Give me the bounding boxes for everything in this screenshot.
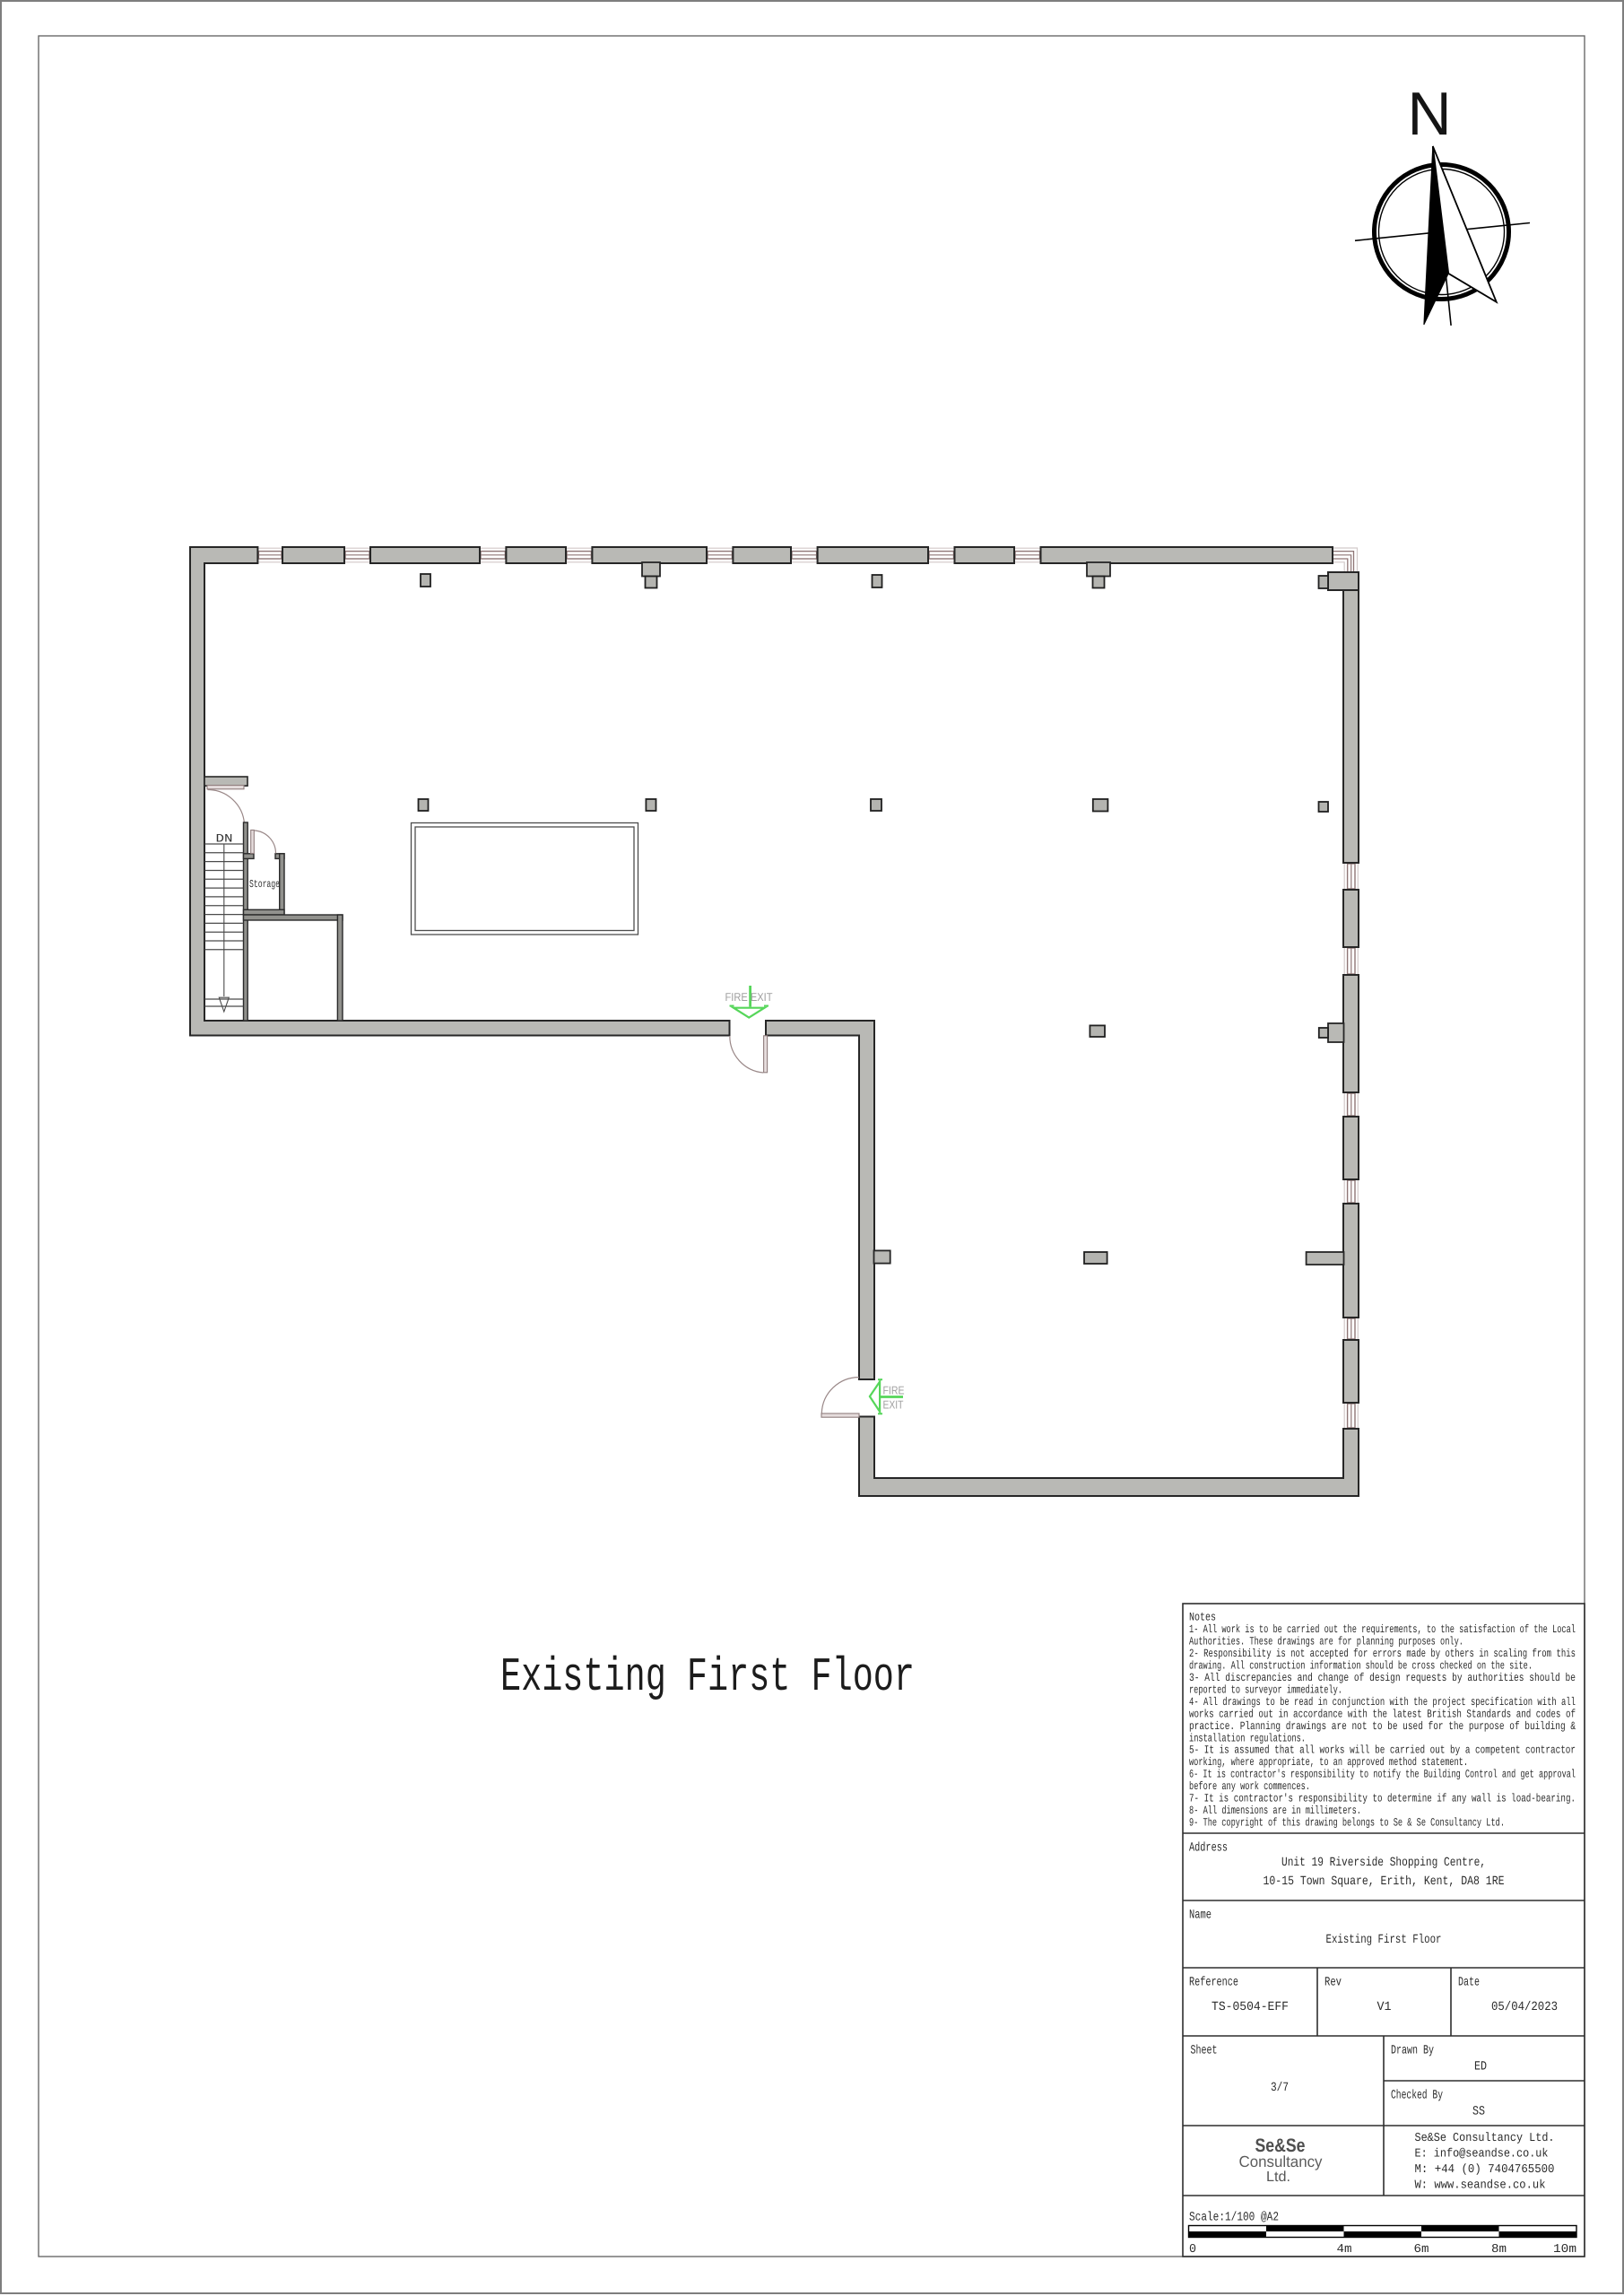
svg-text:works carried out in accordanc: works carried out in accordance with the… bbox=[1189, 1708, 1576, 1720]
svg-text:TS-0504-EFF: TS-0504-EFF bbox=[1211, 2000, 1289, 2014]
svg-text:10m: 10m bbox=[1553, 2243, 1576, 2257]
svg-text:W: www.seandse.co.uk: W: www.seandse.co.uk bbox=[1415, 2179, 1546, 2193]
svg-text:3- All discrepancies and chang: 3- All discrepancies and change of desig… bbox=[1189, 1672, 1576, 1684]
svg-text:Rev: Rev bbox=[1324, 1976, 1342, 1990]
svg-text:5- It is assumed that all work: 5- It is assumed that all works will be … bbox=[1189, 1744, 1576, 1757]
svg-text:Notes: Notes bbox=[1189, 1611, 1216, 1624]
svg-text:1- All work is to be carried o: 1- All work is to be carried out the req… bbox=[1189, 1623, 1576, 1636]
svg-text:drawing. All construction info: drawing. All construction information sh… bbox=[1189, 1660, 1533, 1673]
svg-text:Consultancy: Consultancy bbox=[1239, 2152, 1323, 2170]
svg-text:Reference: Reference bbox=[1189, 1976, 1238, 1990]
svg-text:Sheet: Sheet bbox=[1191, 2044, 1218, 2058]
svg-text:8- All dimensions are in milli: 8- All dimensions are in millimeters. bbox=[1189, 1805, 1361, 1817]
svg-text:Se&Se Consultancy Ltd.: Se&Se Consultancy Ltd. bbox=[1415, 2132, 1555, 2145]
svg-text:6m: 6m bbox=[1414, 2243, 1429, 2257]
svg-text:E: info@seandse.co.uk: E: info@seandse.co.uk bbox=[1415, 2148, 1549, 2161]
svg-text:Ltd.: Ltd. bbox=[1266, 2170, 1290, 2185]
svg-text:N: N bbox=[1407, 80, 1451, 148]
svg-text:Authorities. These drawings ar: Authorities. These drawings are for plan… bbox=[1189, 1636, 1463, 1648]
svg-text:FIRE EXIT: FIRE EXIT bbox=[725, 990, 773, 1004]
svg-text:practice. Planning drawings ar: practice. Planning drawings are not to b… bbox=[1189, 1720, 1576, 1733]
svg-text:7- It is contractor's responsi: 7- It is contractor's responsibility to … bbox=[1189, 1793, 1576, 1805]
svg-text:EXIT: EXIT bbox=[883, 1398, 904, 1412]
svg-text:4m: 4m bbox=[1337, 2243, 1352, 2257]
svg-text:before any work commences.: before any work commences. bbox=[1189, 1780, 1310, 1793]
svg-text:working, where appropriate, to: working, where appropriate, to an approv… bbox=[1189, 1756, 1468, 1769]
svg-text:ED: ED bbox=[1474, 2060, 1487, 2074]
svg-text:0: 0 bbox=[1189, 2243, 1196, 2257]
svg-text:FIRE: FIRE bbox=[883, 1384, 905, 1397]
svg-text:4- All drawings to be read in: 4- All drawings to be read in conjunctio… bbox=[1189, 1696, 1576, 1709]
svg-text:installation regulations.: installation regulations. bbox=[1189, 1732, 1306, 1744]
svg-text:Checked By: Checked By bbox=[1391, 2089, 1443, 2103]
svg-text:Name: Name bbox=[1189, 1909, 1211, 1923]
svg-text:Date: Date bbox=[1458, 1976, 1480, 1990]
svg-text:SS: SS bbox=[1472, 2105, 1485, 2119]
svg-text:Unit 19 Riverside Shopping Cen: Unit 19 Riverside Shopping Centre, bbox=[1281, 1856, 1486, 1870]
svg-text:Scale:1/100 @A2: Scale:1/100 @A2 bbox=[1189, 2211, 1279, 2225]
svg-text:Existing First Floor: Existing First Floor bbox=[1326, 1933, 1442, 1947]
svg-text:Address: Address bbox=[1189, 1841, 1228, 1856]
svg-text:Existing First Floor: Existing First Floor bbox=[500, 1650, 915, 1704]
svg-text:05/04/2023: 05/04/2023 bbox=[1491, 2000, 1558, 2014]
svg-text:M: +44 (0) 7404765500: M: +44 (0) 7404765500 bbox=[1415, 2163, 1555, 2177]
svg-text:V1: V1 bbox=[1377, 2000, 1392, 2014]
svg-text:9- The copyright of this drawi: 9- The copyright of this drawing belongs… bbox=[1189, 1816, 1505, 1829]
svg-text:8m: 8m bbox=[1491, 2243, 1507, 2257]
svg-text:3/7: 3/7 bbox=[1271, 2081, 1289, 2095]
svg-text:Storage: Storage bbox=[249, 878, 280, 891]
svg-text:Drawn By: Drawn By bbox=[1391, 2044, 1434, 2058]
svg-text:2- Responsibility is not accep: 2- Responsibility is not accepted for er… bbox=[1189, 1648, 1576, 1660]
svg-text:reported to surveyor immediate: reported to surveyor immediately. bbox=[1189, 1684, 1342, 1697]
svg-text:6- It is contractor's responsi: 6- It is contractor's responsibility to … bbox=[1189, 1769, 1576, 1781]
svg-text:DN: DN bbox=[216, 832, 233, 846]
svg-text:10-15 Town Square, Erith, Kent: 10-15 Town Square, Erith, Kent, DA8 1RE bbox=[1264, 1874, 1505, 1889]
